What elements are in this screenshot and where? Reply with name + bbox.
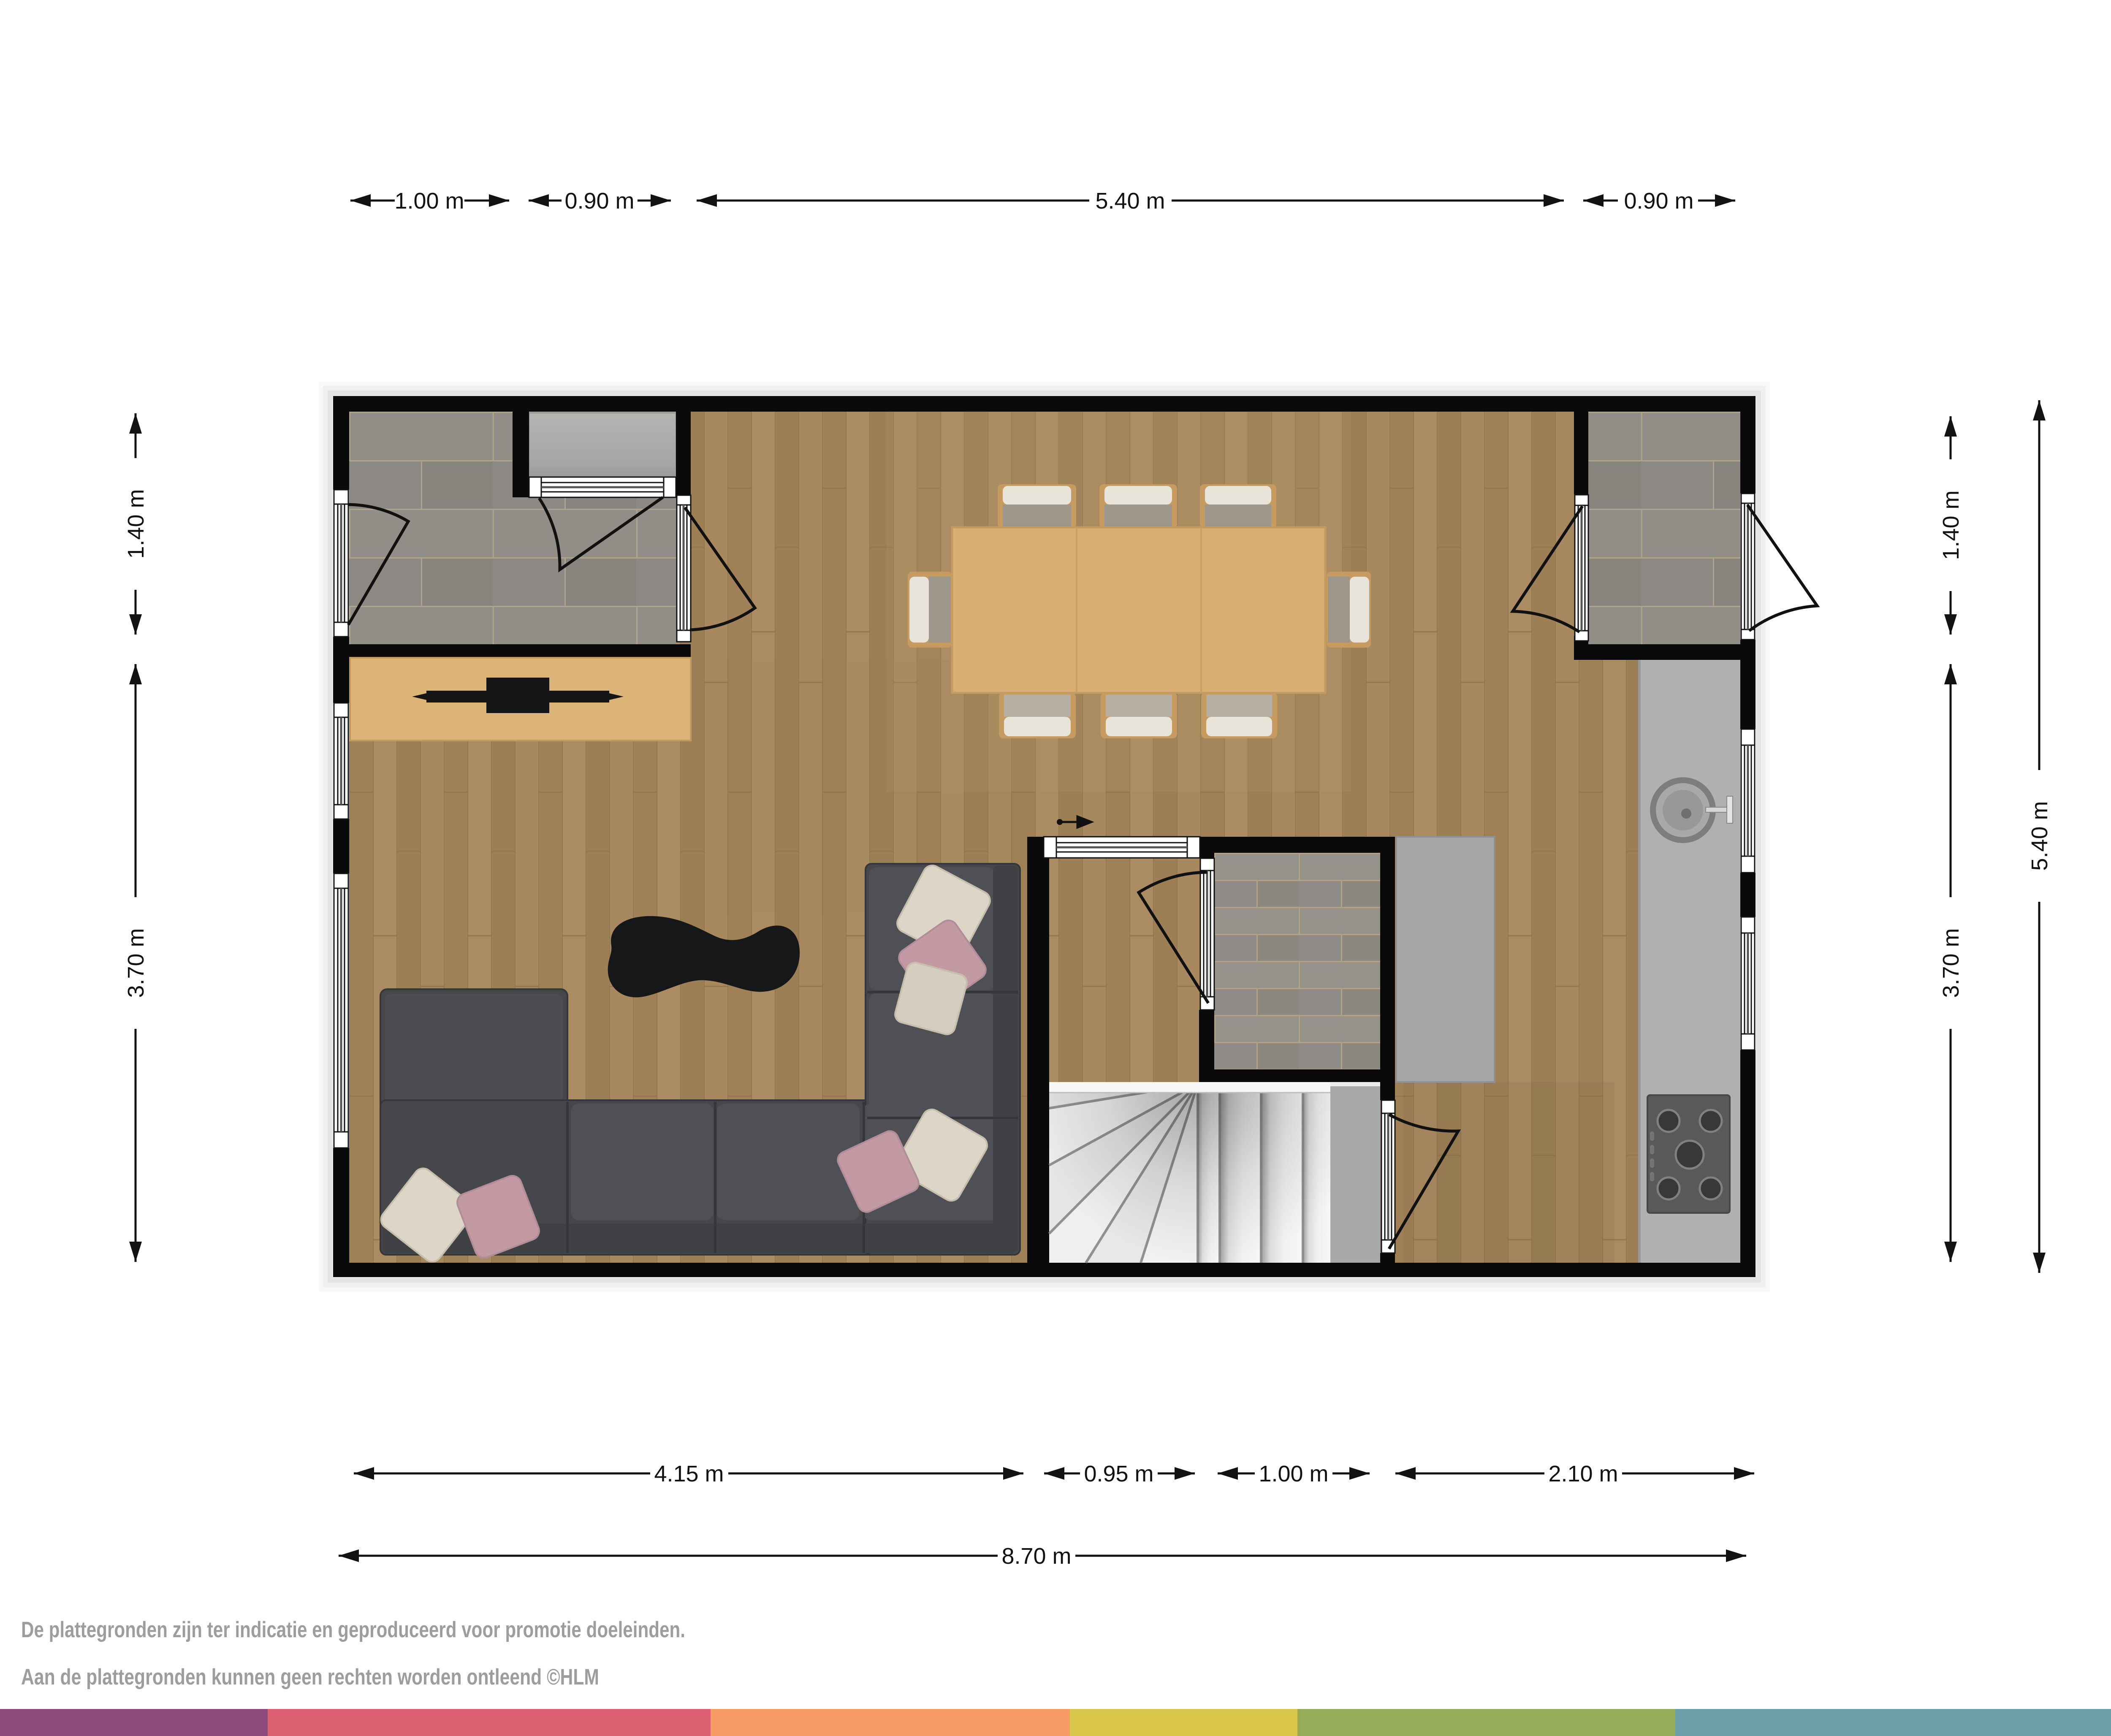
svg-text:1.00 m: 1.00 m	[1259, 1461, 1328, 1486]
svg-text:3.70 m: 3.70 m	[123, 928, 149, 998]
svg-text:Aan de plattegronden kunnen ge: Aan de plattegronden kunnen geen rechten…	[21, 1665, 599, 1690]
svg-text:De plattegronden zijn ter indi: De plattegronden zijn ter indicatie en g…	[21, 1617, 685, 1642]
svg-text:0.95 m: 0.95 m	[1084, 1461, 1153, 1486]
svg-text:2.10 m: 2.10 m	[1548, 1461, 1618, 1486]
svg-text:5.40 m: 5.40 m	[1095, 188, 1165, 214]
svg-text:0.90 m: 0.90 m	[1624, 188, 1693, 214]
svg-text:1.40 m: 1.40 m	[1938, 490, 1964, 560]
svg-text:3.70 m: 3.70 m	[1938, 928, 1964, 998]
svg-text:8.70 m: 8.70 m	[1001, 1543, 1071, 1569]
svg-text:1.00 m: 1.00 m	[394, 188, 464, 214]
svg-text:5.40 m: 5.40 m	[2027, 801, 2052, 871]
svg-text:4.15 m: 4.15 m	[654, 1461, 724, 1486]
svg-text:1.40 m: 1.40 m	[123, 489, 149, 559]
svg-text:0.90 m: 0.90 m	[564, 188, 634, 214]
